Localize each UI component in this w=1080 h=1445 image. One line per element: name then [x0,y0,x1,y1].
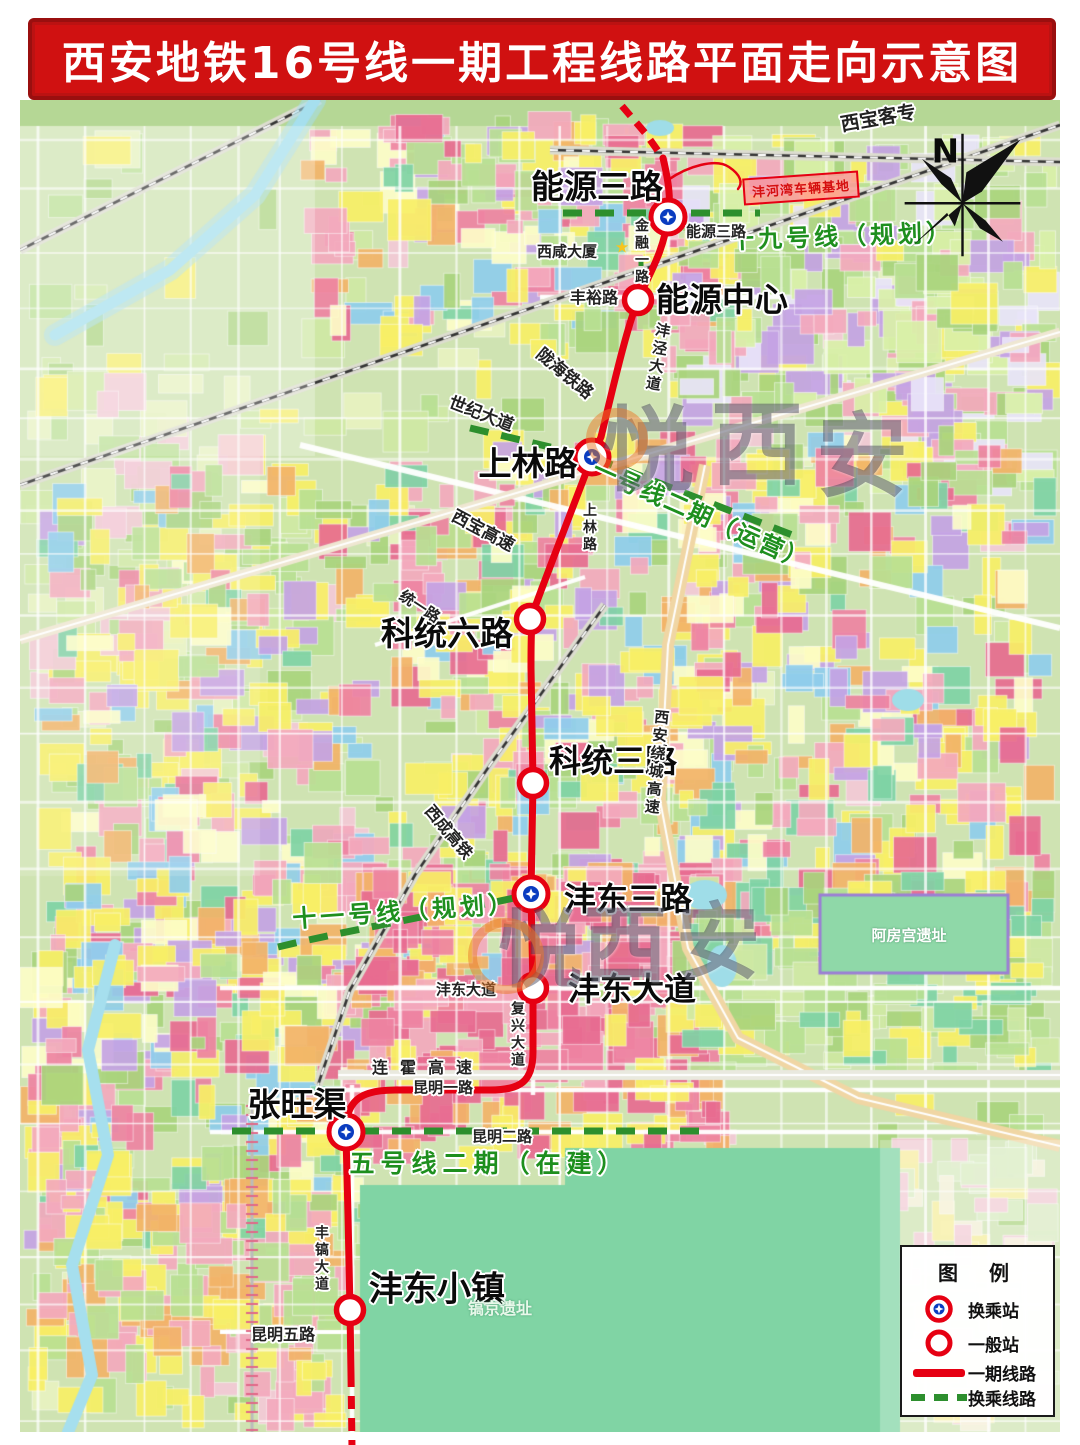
route-map-page: 西安地铁16号线一期工程线路平面走向示意图 能源三路能源中心上林路科统六路科统三… [0,0,1080,1445]
watermark-text: 安 [676,876,760,997]
page-title: 西安地铁16号线一期工程线路平面走向示意图 [62,27,1022,91]
north-compass-icon: N [895,126,1030,266]
stations-group [329,200,685,1324]
depot-spur-track [668,163,741,189]
transfer-station-icon [910,1292,968,1326]
legend-box: 图 例 换乘站 一般站 一期线路 换乘 [900,1245,1055,1417]
legend-label-regular: 一般站 [968,1331,1019,1356]
line16-south-extension [351,1374,352,1445]
regular-station-icon [910,1326,968,1360]
title-banner: 西安地铁16号线一期工程线路平面走向示意图 [28,18,1056,100]
regular-station-marker [625,287,652,314]
compass-n-label: N [932,133,959,171]
legend-label-line: 一期线路 [968,1360,1036,1385]
line16-route [346,158,669,1374]
legend-label-transfer: 换乘站 [968,1297,1019,1322]
watermark-logo-icon [586,408,648,470]
watermark-logo-icon [468,918,544,994]
watermark-text: 西 [583,879,667,1000]
legend-label-dashed: 换乘线路 [968,1385,1036,1410]
transfer-station-marker [329,1115,363,1149]
regular-station-marker [520,770,547,797]
phase1-line-icon [910,1369,968,1377]
watermark-text: 西 [711,371,803,504]
legend-title: 图 例 [914,1257,1045,1286]
legend-row-transfer: 换乘站 [910,1292,1045,1326]
line16-north-extension [622,106,663,158]
legend-row-line: 一期线路 [910,1360,1045,1385]
transfer-station-marker [651,200,685,234]
legend-row-regular: 一般站 [910,1326,1045,1360]
regular-station-marker [337,1297,364,1324]
transfer-line-icon [910,1394,968,1401]
watermark-text: 安 [816,383,908,516]
regular-station-marker [517,606,544,633]
legend-row-dashed: 换乘线路 [910,1385,1045,1410]
